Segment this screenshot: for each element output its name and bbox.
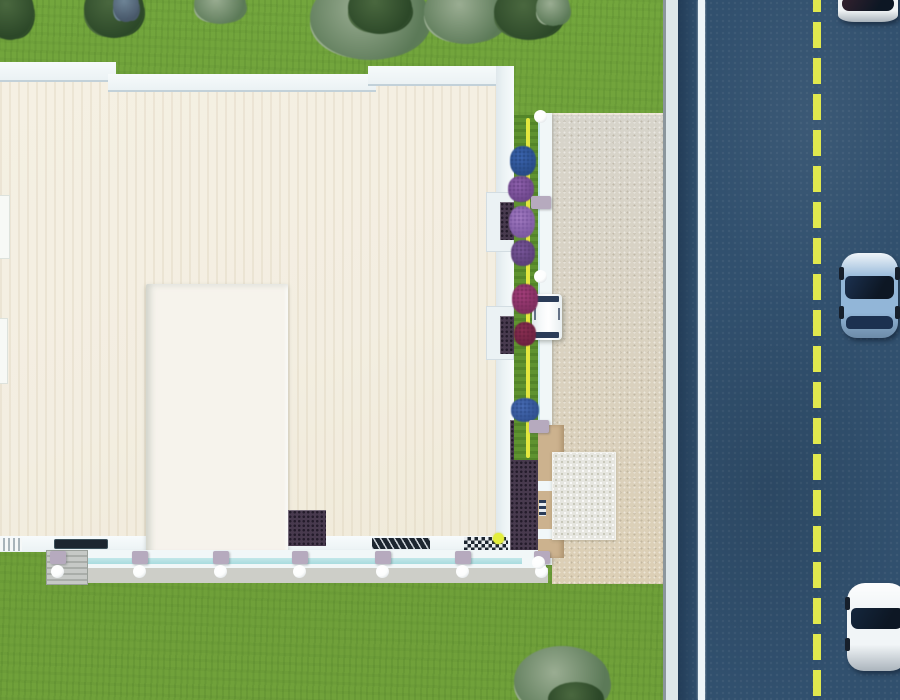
left-edge-steps xyxy=(0,538,22,551)
car-white-bottom-windshield xyxy=(851,608,900,629)
car-blue-wheel xyxy=(895,306,900,319)
car-blue xyxy=(841,253,898,338)
parapet-top-middle xyxy=(108,74,376,92)
walkway-post-cap xyxy=(455,551,471,564)
fence-post-cap xyxy=(529,420,549,433)
walkway-post-cap xyxy=(292,551,308,564)
left-edge-ledge-1 xyxy=(0,195,10,259)
car-blue-wheel xyxy=(839,306,844,319)
walkway-post-ball xyxy=(214,565,227,578)
planter-flowers xyxy=(511,240,535,266)
left-edge-ledge-2 xyxy=(0,318,8,384)
walkway-post-ball xyxy=(456,565,469,578)
planter-flowers xyxy=(514,322,536,346)
roof-tower-block xyxy=(146,284,288,576)
hatched-vent-strip xyxy=(372,538,430,549)
planter-flowers xyxy=(511,398,539,422)
van-side-window-right xyxy=(558,308,560,320)
curb-edge-line xyxy=(663,0,666,700)
van-windshield xyxy=(535,296,559,302)
walkway-post-ball xyxy=(51,565,64,578)
fence-post-ball xyxy=(534,110,547,123)
walkway-post-ball xyxy=(133,565,146,578)
walkway-post-cap xyxy=(50,551,66,564)
yellow-marker-dot xyxy=(493,533,504,544)
fence-post-ball xyxy=(532,556,545,569)
road-yellow-center-dashes xyxy=(813,0,821,700)
walkway-post-ball xyxy=(376,565,389,578)
planter-flowers xyxy=(510,146,536,176)
road-white-edge-line xyxy=(698,0,705,700)
roof-vent-slot xyxy=(54,539,108,549)
car-white-top xyxy=(838,0,898,22)
planter-flowers xyxy=(509,206,535,238)
canopy-glass-strip xyxy=(60,558,522,564)
fence-post-ball xyxy=(534,270,547,283)
pergola-south xyxy=(288,510,326,546)
gate-column-vents xyxy=(539,500,546,516)
fence-post-cap xyxy=(531,196,551,209)
car-blue-rear-window xyxy=(846,316,893,329)
car-blue-wheel xyxy=(895,267,900,280)
parapet-top-left xyxy=(0,62,116,82)
parapet-top-right xyxy=(368,66,510,86)
entrance-tile-patio xyxy=(552,452,616,540)
planter-flowers xyxy=(512,284,538,314)
walkway-post-ball xyxy=(293,565,306,578)
car-blue-windshield xyxy=(845,276,894,299)
car-white-bottom xyxy=(847,583,900,671)
aerial-scene xyxy=(0,0,900,700)
walkway-post-cap xyxy=(375,551,391,564)
car-blue-wheel xyxy=(839,267,844,280)
van-rear-window xyxy=(535,332,559,338)
car-white-top-windshield xyxy=(842,0,894,11)
road-gutter-shadow xyxy=(678,0,699,700)
car-white-bottom-wheel xyxy=(845,597,850,610)
walkway-post-cap xyxy=(213,551,229,564)
walkway-post-cap xyxy=(132,551,148,564)
car-white-bottom-wheel xyxy=(845,638,850,651)
